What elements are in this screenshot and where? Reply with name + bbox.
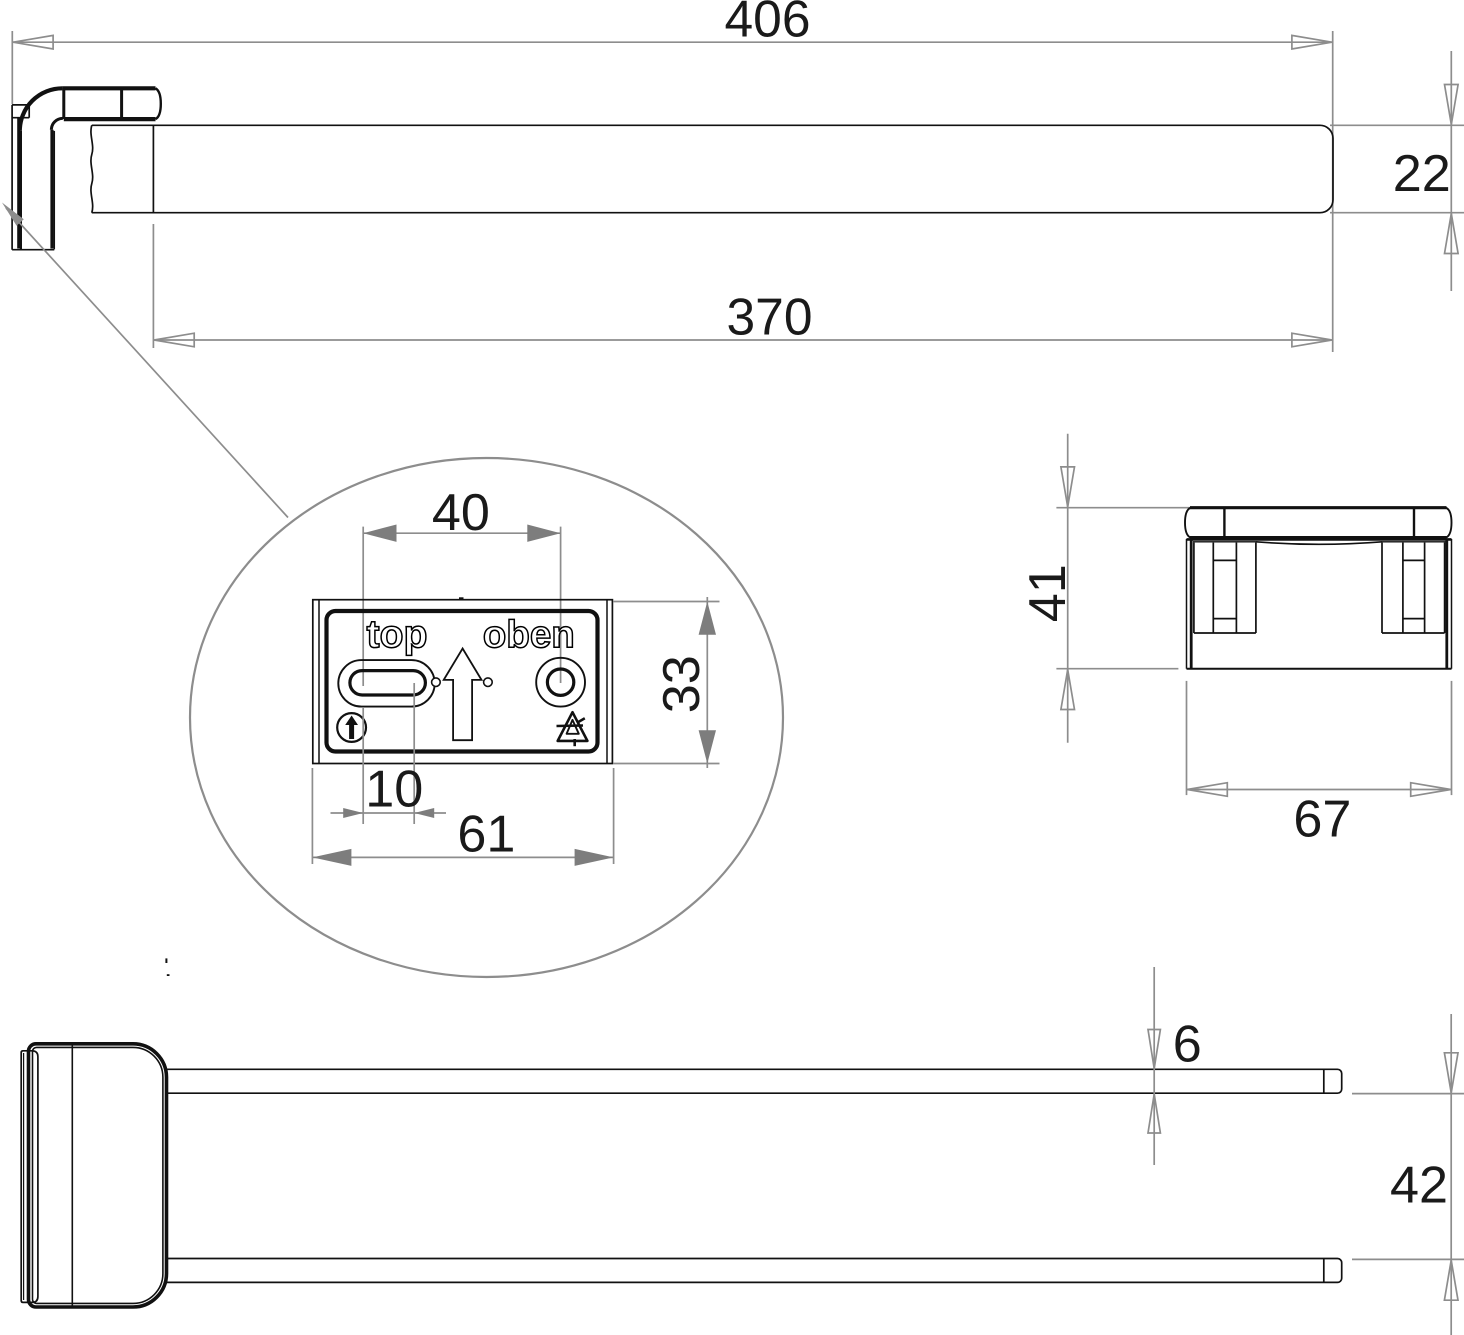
svg-text:61: 61	[457, 806, 515, 864]
svg-text:67: 67	[1293, 790, 1351, 848]
svg-text:370: 370	[727, 288, 813, 346]
svg-text:33: 33	[653, 655, 711, 713]
svg-text:22: 22	[1393, 145, 1451, 203]
svg-text:10: 10	[365, 760, 423, 818]
svg-text:40: 40	[432, 484, 490, 542]
svg-text:406: 406	[725, 0, 811, 49]
svg-text:6: 6	[1173, 1016, 1202, 1074]
svg-text:41: 41	[1019, 564, 1077, 622]
svg-text:42: 42	[1390, 1157, 1448, 1215]
